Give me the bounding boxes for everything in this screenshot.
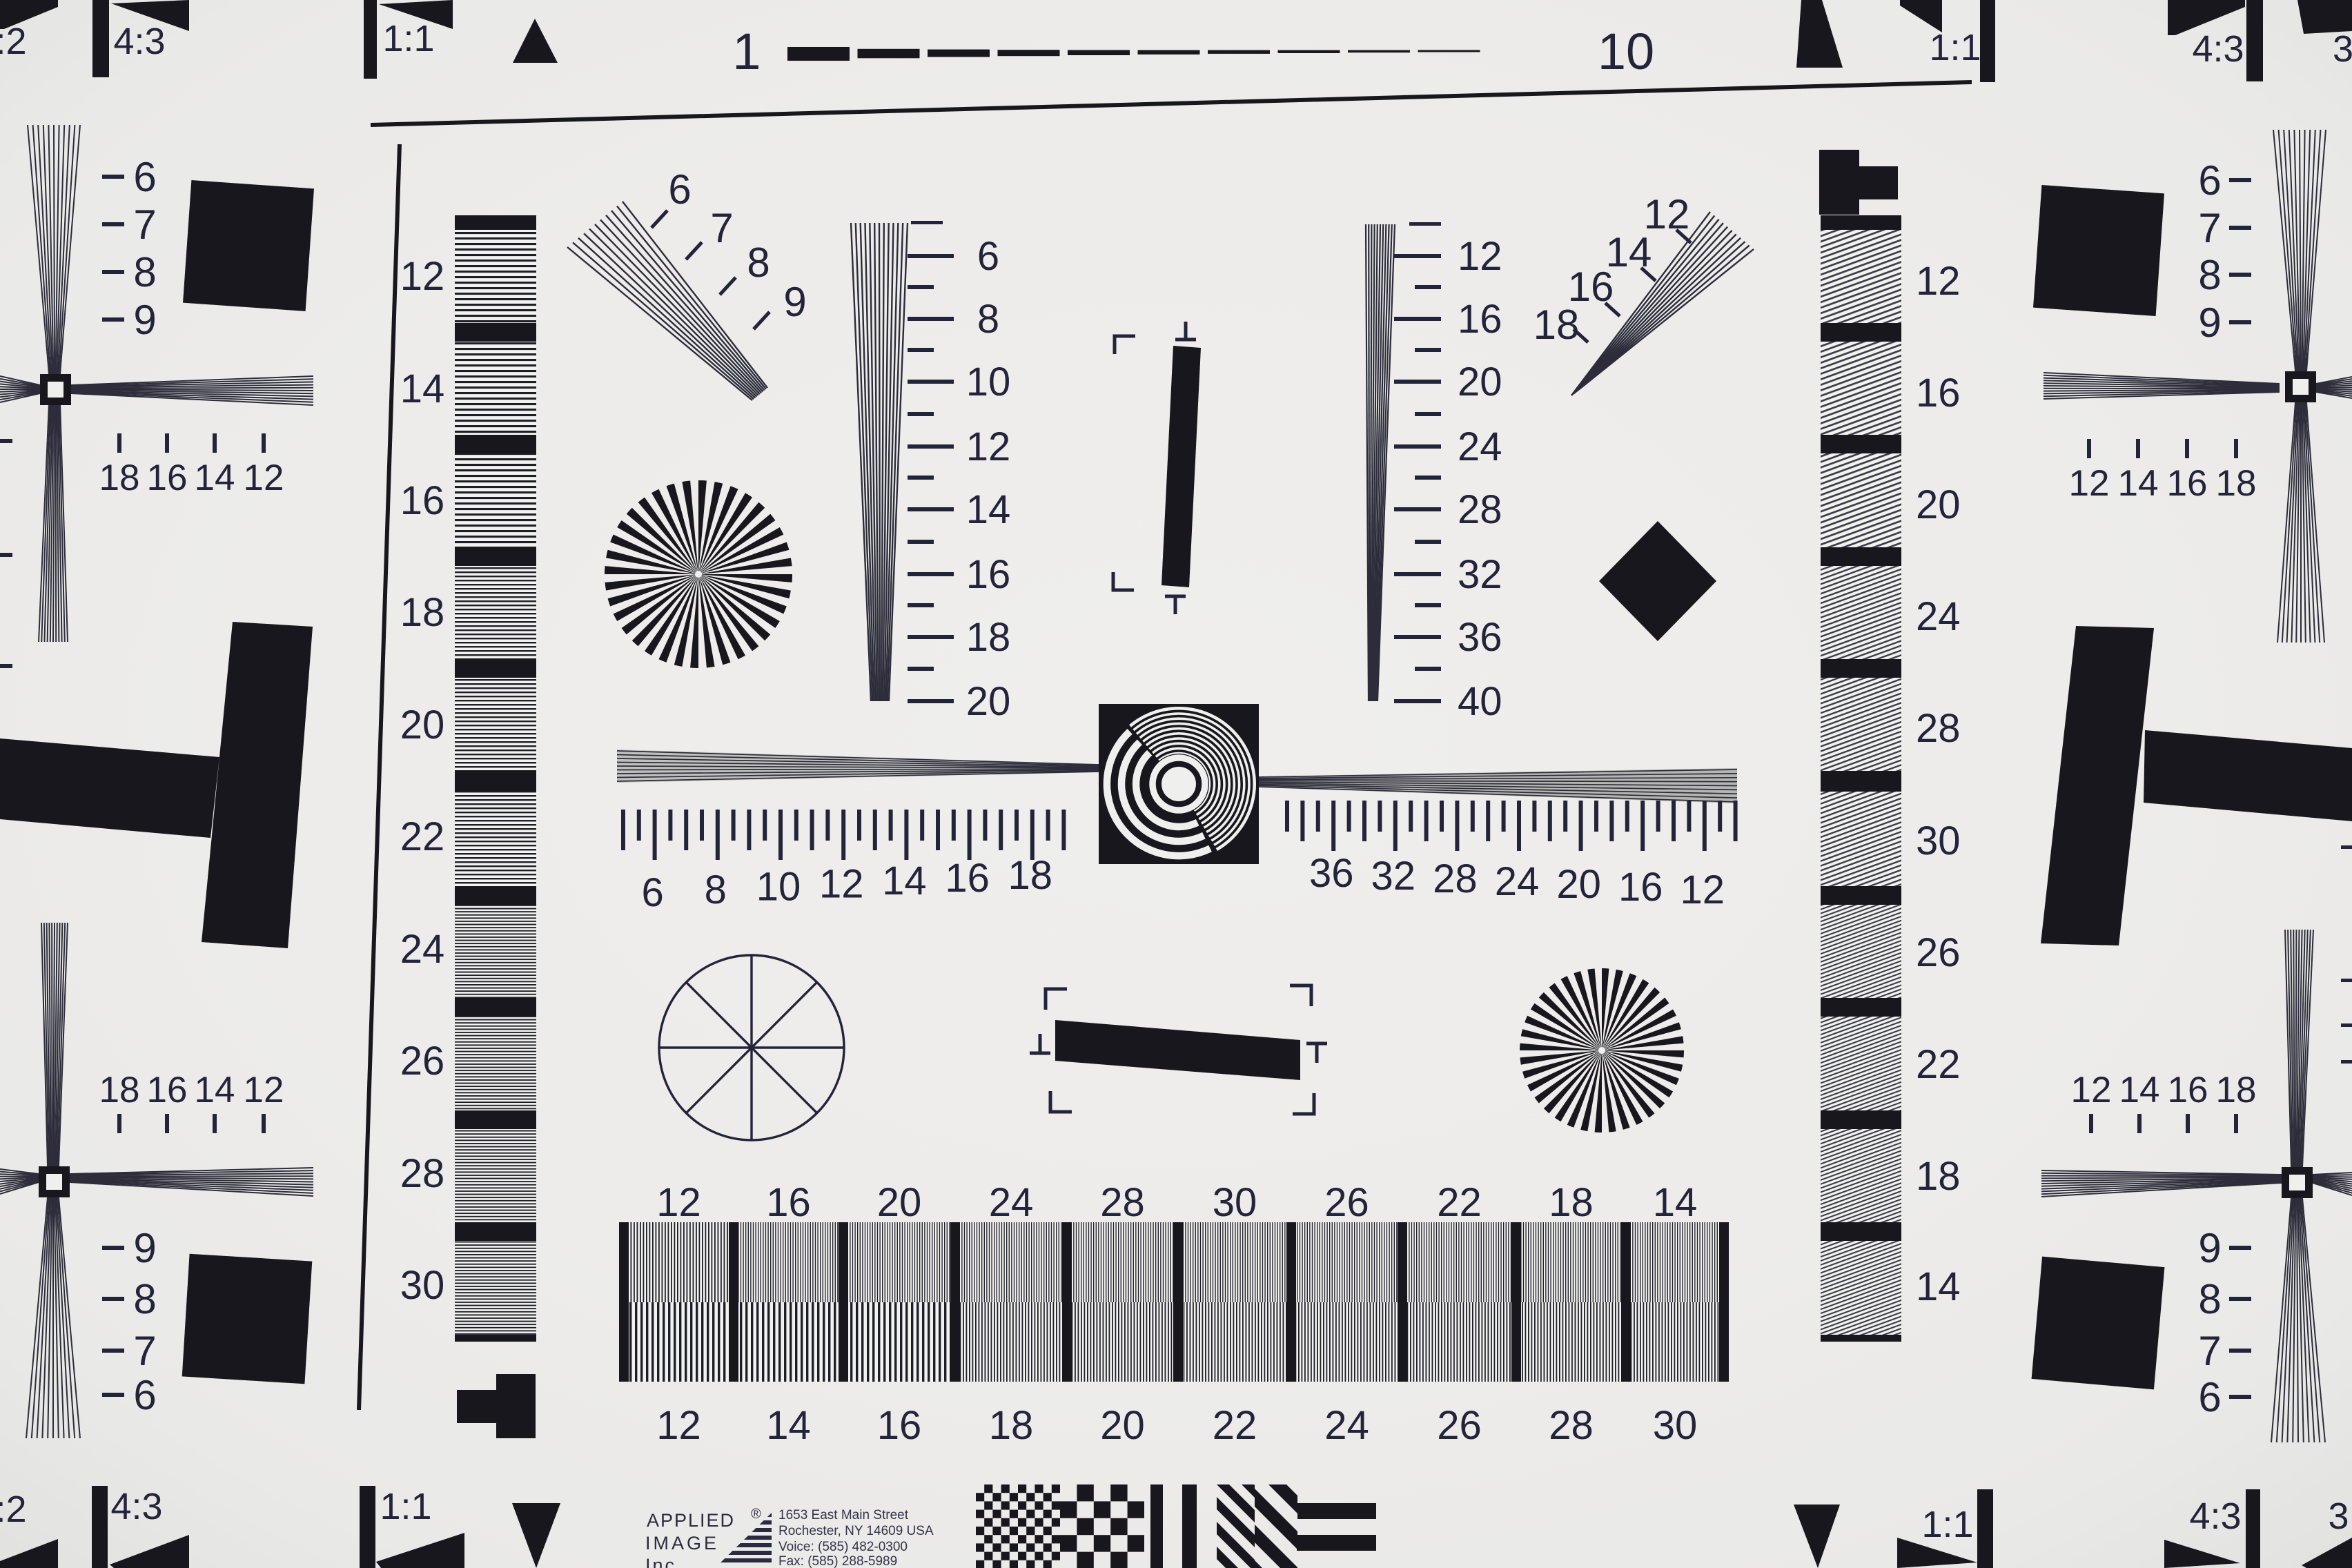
svg-text:6: 6	[641, 870, 663, 915]
svg-text:30: 30	[1653, 1403, 1698, 1448]
svg-text:16: 16	[400, 478, 445, 523]
svg-text:18: 18	[99, 1070, 140, 1110]
svg-text:12: 12	[2069, 463, 2110, 504]
svg-text:16: 16	[966, 552, 1011, 597]
svg-text:28: 28	[1916, 706, 1961, 751]
svg-text:18: 18	[989, 1403, 1034, 1448]
svg-text:6: 6	[133, 1372, 156, 1418]
svg-text:3: 3	[2333, 28, 2352, 70]
svg-text:24: 24	[1324, 1403, 1369, 1448]
svg-text:4:3: 4:3	[113, 21, 165, 62]
svg-text:®: ®	[751, 1507, 761, 1522]
svg-text:18: 18	[1533, 302, 1580, 348]
svg-text:14: 14	[195, 458, 235, 498]
svg-text:12: 12	[1458, 234, 1502, 279]
svg-text:26: 26	[1437, 1403, 1482, 1448]
svg-text:7: 7	[2198, 1328, 2221, 1374]
svg-text:18: 18	[1008, 853, 1053, 898]
svg-text:12: 12	[819, 861, 864, 906]
svg-text:18: 18	[2216, 1070, 2257, 1110]
svg-text:14: 14	[1916, 1264, 1961, 1309]
svg-text:12: 12	[400, 254, 445, 299]
svg-text:8: 8	[977, 297, 999, 342]
svg-text:18: 18	[400, 590, 445, 635]
svg-text:32: 32	[1458, 552, 1502, 597]
svg-text:12: 12	[2071, 1070, 2112, 1110]
svg-text:1653 East Main Street: 1653 East Main Street	[778, 1508, 909, 1522]
svg-text:36: 36	[1309, 851, 1354, 896]
svg-text:18: 18	[1549, 1180, 1594, 1225]
svg-text:32: 32	[1371, 854, 1416, 899]
svg-text:IMAGE: IMAGE	[645, 1533, 719, 1554]
svg-text:20: 20	[1100, 1403, 1145, 1448]
svg-text:16: 16	[766, 1180, 811, 1225]
svg-text:16: 16	[2167, 463, 2208, 504]
svg-text:24: 24	[989, 1180, 1034, 1225]
svg-text:7: 7	[710, 205, 733, 251]
svg-text:8: 8	[705, 868, 727, 912]
svg-text:6: 6	[668, 166, 691, 213]
svg-text:22: 22	[1916, 1042, 1961, 1087]
svg-text:30: 30	[1916, 819, 1961, 863]
svg-text:6: 6	[133, 154, 156, 200]
svg-text:16: 16	[1618, 865, 1663, 910]
svg-text::2: :2	[0, 1489, 27, 1530]
svg-text:16: 16	[877, 1403, 922, 1448]
svg-text:12: 12	[656, 1403, 701, 1448]
svg-text:24: 24	[1458, 424, 1502, 469]
svg-text:9: 9	[2198, 300, 2221, 346]
svg-text:14: 14	[400, 366, 445, 411]
svg-text:APPLIED: APPLIED	[647, 1510, 735, 1531]
svg-text:10: 10	[966, 360, 1011, 404]
svg-text:1:1: 1:1	[380, 1486, 431, 1527]
svg-text:10: 10	[1598, 23, 1654, 80]
svg-text:30: 30	[400, 1263, 445, 1308]
svg-text:30: 30	[1213, 1180, 1257, 1225]
svg-text:18: 18	[2216, 463, 2257, 504]
svg-text:28: 28	[1100, 1180, 1145, 1225]
svg-text:1:1: 1:1	[1929, 27, 1981, 68]
svg-text:Inc: Inc	[645, 1555, 676, 1568]
svg-text:4:3: 4:3	[110, 1486, 162, 1527]
svg-text:28: 28	[400, 1151, 445, 1196]
svg-text:36: 36	[1458, 615, 1502, 660]
svg-text:1:1: 1:1	[1921, 1504, 1973, 1545]
svg-text:10: 10	[756, 865, 801, 910]
svg-text:22: 22	[1213, 1403, 1257, 1448]
svg-text:20: 20	[1916, 482, 1961, 527]
svg-text:12: 12	[244, 458, 284, 498]
svg-text:28: 28	[1549, 1403, 1594, 1448]
svg-text:7: 7	[2198, 205, 2221, 251]
svg-text:8: 8	[133, 1276, 156, 1322]
svg-text:4:3: 4:3	[2192, 28, 2244, 70]
svg-text:9: 9	[783, 279, 806, 325]
svg-text:24: 24	[1916, 594, 1961, 639]
svg-text:14: 14	[2119, 1070, 2160, 1110]
svg-text:20: 20	[1556, 862, 1601, 907]
svg-text:20: 20	[400, 703, 445, 747]
svg-text:14: 14	[882, 859, 927, 903]
svg-text:26: 26	[400, 1039, 445, 1084]
svg-text:20: 20	[877, 1180, 922, 1225]
svg-text:26: 26	[1324, 1180, 1369, 1225]
svg-text:18: 18	[966, 615, 1011, 660]
svg-text:22: 22	[1437, 1180, 1482, 1225]
svg-text:6: 6	[2198, 1374, 2221, 1420]
svg-text:16: 16	[1916, 371, 1961, 415]
svg-text:14: 14	[2118, 463, 2159, 504]
svg-text:14: 14	[766, 1403, 811, 1448]
svg-text:26: 26	[1916, 930, 1961, 975]
svg-text:16: 16	[1458, 297, 1502, 342]
svg-text:12: 12	[1680, 868, 1725, 912]
svg-text:6: 6	[977, 234, 999, 279]
svg-text:24: 24	[400, 927, 445, 972]
svg-text:7: 7	[133, 202, 156, 248]
svg-text:Fax: (585) 288-5989: Fax: (585) 288-5989	[778, 1554, 897, 1568]
svg-text:12: 12	[966, 424, 1011, 469]
svg-text:8: 8	[2198, 1276, 2221, 1322]
svg-text:3:: 3:	[2328, 1496, 2352, 1537]
svg-text:18: 18	[1916, 1154, 1961, 1199]
svg-text:1:1: 1:1	[382, 18, 434, 59]
svg-text:4:3: 4:3	[2189, 1496, 2241, 1537]
svg-text:20: 20	[1458, 360, 1502, 404]
svg-text:14: 14	[1653, 1180, 1698, 1225]
svg-text:9: 9	[133, 297, 156, 343]
svg-text:8: 8	[747, 239, 770, 286]
svg-text:16: 16	[147, 458, 188, 498]
svg-text:9: 9	[2198, 1225, 2221, 1271]
svg-text:12: 12	[244, 1070, 284, 1110]
svg-text:16: 16	[147, 1070, 188, 1110]
svg-text:8: 8	[2198, 252, 2221, 298]
svg-text:28: 28	[1433, 856, 1478, 901]
svg-text:20: 20	[966, 679, 1011, 724]
svg-text:Voice: (585) 482-0300: Voice: (585) 482-0300	[778, 1540, 908, 1554]
svg-text:6: 6	[2198, 157, 2221, 204]
svg-text:28: 28	[1458, 487, 1502, 532]
svg-text:9: 9	[133, 1225, 156, 1271]
svg-text:Rochester, NY 14609 USA: Rochester, NY 14609 USA	[778, 1524, 934, 1538]
svg-text::2: :2	[0, 21, 27, 62]
svg-text:16: 16	[945, 856, 990, 901]
svg-text:14: 14	[195, 1070, 235, 1110]
svg-text:22: 22	[400, 814, 445, 859]
svg-text:40: 40	[1458, 679, 1502, 724]
svg-text:7: 7	[133, 1328, 156, 1374]
svg-text:16: 16	[2168, 1070, 2208, 1110]
svg-text:14: 14	[966, 487, 1011, 532]
svg-text:12: 12	[656, 1180, 701, 1225]
svg-text:8: 8	[133, 249, 156, 295]
svg-text:24: 24	[1495, 859, 1540, 904]
svg-text:18: 18	[99, 458, 140, 498]
svg-text:12: 12	[1916, 259, 1961, 304]
svg-text:1: 1	[732, 23, 761, 80]
